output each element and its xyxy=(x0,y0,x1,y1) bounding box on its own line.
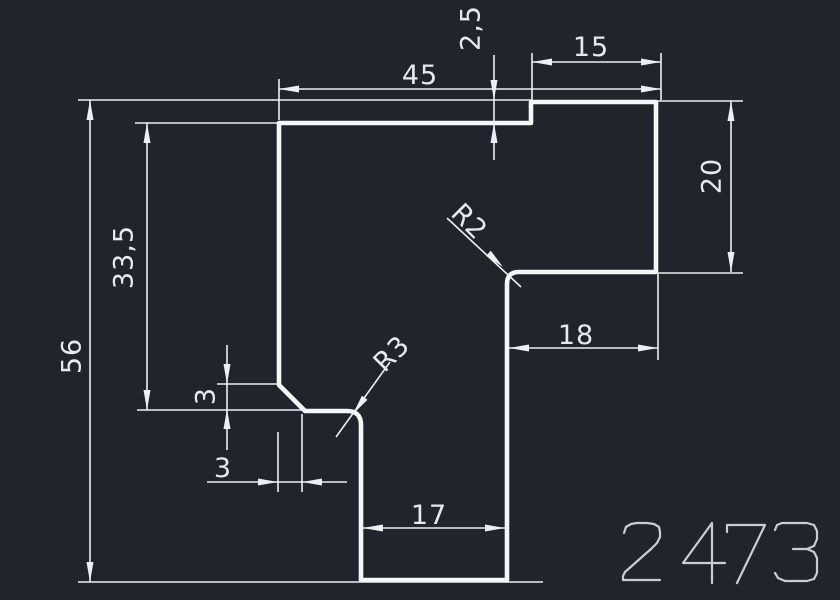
arrowhead-56-top xyxy=(87,100,94,120)
part-number-glyph-3 xyxy=(775,549,817,581)
dim-total-width: 45 xyxy=(279,60,661,93)
dim-chamfer-width: 3 xyxy=(207,453,347,486)
arrowhead-18-right xyxy=(638,345,658,352)
dim-r2-label: R2 xyxy=(445,198,494,247)
part-number-glyph-2 xyxy=(623,523,660,580)
arrowhead-56-bottom xyxy=(87,562,94,582)
dim-45-label: 45 xyxy=(402,60,438,91)
arrowhead-20-top xyxy=(728,101,735,121)
dim-right-flange-height: 20 xyxy=(697,101,735,272)
dim-chamfer-width-label: 3 xyxy=(214,453,232,484)
part-number-glyph-7 xyxy=(727,525,765,583)
arrowhead-18-left xyxy=(509,345,529,352)
arrowhead-20-bottom xyxy=(728,252,735,272)
arrowhead-r2 xyxy=(486,251,503,267)
part-number-glyph-3 xyxy=(775,523,817,549)
arrowhead-15-left xyxy=(532,59,552,66)
arrowhead-15-right xyxy=(641,59,661,66)
dim-18-label: 18 xyxy=(558,320,594,351)
dim-upper-left-height: 33,5 xyxy=(109,123,151,410)
arrowhead-chamfer-h-left xyxy=(258,479,278,486)
arrowhead-chamfer-h-right xyxy=(302,479,322,486)
arrowhead-45-right xyxy=(641,86,661,93)
part-number-glyph-4 xyxy=(683,523,725,563)
cad-canvas: 45 15 2,5 56 33,5 20 18 xyxy=(0,0,840,600)
dim-total-height: 56 xyxy=(57,100,94,582)
arrowhead-17-right xyxy=(485,525,505,532)
arrowhead-chamfer-v-bottom xyxy=(224,409,231,429)
dim-chamfer-height: 3 xyxy=(191,345,231,450)
profile-outline xyxy=(279,102,656,580)
dim-inner-width: 18 xyxy=(509,320,658,352)
dim-bottom-leg-width: 17 xyxy=(363,500,505,532)
dim-33-5-label: 33,5 xyxy=(109,225,140,289)
arrowhead-2-5-top xyxy=(491,80,498,100)
radius-callout-r3: R3 xyxy=(336,330,416,437)
dim-20-label: 20 xyxy=(697,158,728,194)
arrowhead-33-5-top xyxy=(144,123,151,143)
cad-drawing-viewport: 45 15 2,5 56 33,5 20 18 xyxy=(0,0,840,600)
dim-15-label: 15 xyxy=(573,32,609,63)
dim-chamfer-height-label: 3 xyxy=(191,387,222,405)
dim-56-label: 56 xyxy=(57,338,88,374)
dim-step-height: 2,5 xyxy=(456,5,498,160)
arrowhead-33-5-bottom xyxy=(144,390,151,410)
dim-top-right-width: 15 xyxy=(532,32,661,66)
part-number xyxy=(623,523,817,583)
dim-r3-label: R3 xyxy=(368,330,417,379)
arrowhead-2-5-bottom xyxy=(491,123,498,143)
arrowhead-chamfer-v-top xyxy=(224,364,231,384)
arrowhead-r3 xyxy=(353,396,368,414)
dim-2-5-label: 2,5 xyxy=(456,5,487,51)
dim-17-label: 17 xyxy=(411,500,447,531)
arrowhead-45-left xyxy=(279,86,299,93)
arrowhead-17-left xyxy=(363,525,383,532)
